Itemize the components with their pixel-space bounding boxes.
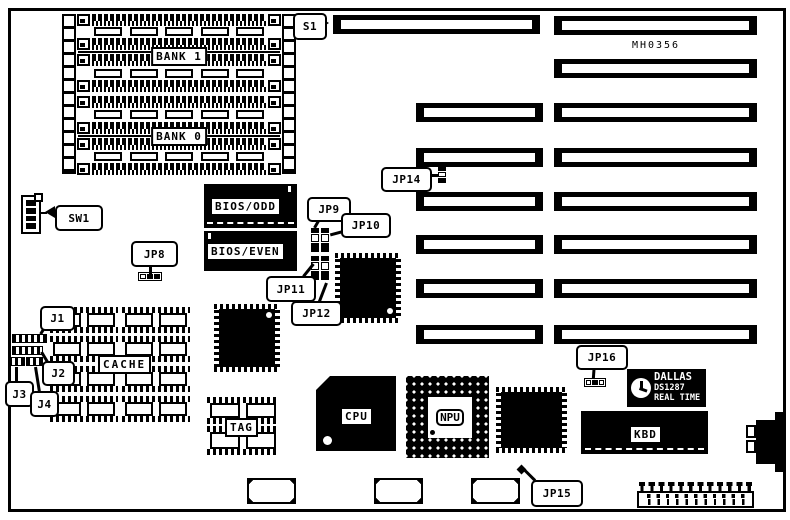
slot-stripe <box>562 153 749 162</box>
slot-stripe <box>562 64 749 73</box>
kbd-label: KBD <box>629 425 662 444</box>
slot-stripe <box>562 21 749 30</box>
j1-header <box>12 334 47 343</box>
simm-socket-row <box>94 27 264 36</box>
simm-socket-cell <box>94 27 122 36</box>
jp10-jumper <box>321 228 329 252</box>
jumper-cell <box>438 178 446 183</box>
expansion-slot <box>554 235 757 254</box>
simm-clip <box>268 14 281 26</box>
bios-even-label: BIOS/EVEN <box>206 242 285 261</box>
io-qfp-chip <box>496 387 567 453</box>
jumper-cell <box>599 380 604 385</box>
power-connector-slots <box>641 494 750 498</box>
simm-socket-cell <box>236 152 264 161</box>
slot-stripe <box>562 197 749 206</box>
rtc-chip: DALLAS DS1287 REAL TIME <box>627 369 706 407</box>
simm-socket-cell <box>201 152 229 161</box>
dip-switch-segment <box>26 223 36 229</box>
simm-rail-left <box>62 14 76 174</box>
socket-cell <box>87 313 115 327</box>
callout-jp14: JP14 <box>381 167 432 192</box>
slot-stripe <box>562 284 749 293</box>
din-pin-tab <box>746 425 756 438</box>
callout-jp16: JP16 <box>576 345 628 370</box>
expansion-slot <box>554 325 757 344</box>
npu-socket: NPU <box>406 376 489 458</box>
simm-clip <box>77 54 90 66</box>
simm-clip <box>268 122 281 134</box>
jumper-cell <box>438 167 446 171</box>
keyboard-din-connector <box>775 412 786 472</box>
simm-clip <box>77 122 90 134</box>
mount-pad <box>374 478 423 504</box>
arrow-left-icon <box>45 206 55 218</box>
socket-pins <box>122 327 190 333</box>
simm-socket-cell <box>94 69 122 78</box>
slot-stripe <box>424 197 535 206</box>
bank0-label: BANK 0 <box>151 127 207 146</box>
controller-qfp-chip <box>214 304 280 372</box>
expansion-slot-s1 <box>333 15 540 34</box>
simm-socket-cell <box>165 27 193 36</box>
jumper-cell <box>321 256 329 261</box>
socket-cell <box>125 372 153 386</box>
slot-stripe <box>424 153 535 162</box>
pin1-dot <box>323 436 332 445</box>
jumper-cell <box>321 243 329 252</box>
npu-label: NPU <box>436 409 464 426</box>
simm-socket-row <box>94 69 264 78</box>
simm-clip <box>77 163 90 175</box>
cache-socket <box>122 396 190 422</box>
jp9-jumper <box>311 228 319 252</box>
simm-clip <box>77 96 90 108</box>
j4-header <box>26 357 43 366</box>
socket-cell <box>53 342 81 356</box>
sw1-corner-pad <box>34 193 43 202</box>
npu-socket-center: NPU <box>428 397 472 438</box>
din-pin-tab <box>746 440 756 453</box>
simm-module <box>92 163 266 175</box>
chip-notch <box>288 186 291 192</box>
socket-cell <box>159 372 187 386</box>
socket-cell <box>125 342 153 356</box>
simm-socket-cell <box>130 152 158 161</box>
simm-socket-cell <box>236 27 264 36</box>
power-connector-cells <box>641 499 750 505</box>
simm-clip <box>77 80 90 92</box>
simm-socket-row <box>94 152 264 161</box>
slot-stripe <box>341 20 532 29</box>
chip-die <box>501 392 562 448</box>
socket-pins <box>50 416 118 422</box>
power-connector <box>637 491 754 508</box>
dip-switch-segment <box>26 216 36 222</box>
cpu-label: CPU <box>340 407 373 426</box>
simm-clip <box>268 138 281 150</box>
jumper-cell <box>311 234 319 242</box>
slot-stripe <box>424 108 535 117</box>
simm-socket-row <box>94 110 264 119</box>
pin1-dot <box>266 312 272 318</box>
simm-socket-cell <box>201 110 229 119</box>
cache-socket <box>50 396 118 422</box>
expansion-slot <box>554 103 757 122</box>
jumper-cell <box>140 274 146 279</box>
slot-stripe <box>424 240 535 249</box>
callout-jp15: JP15 <box>531 480 583 507</box>
jumper-cell <box>321 262 329 270</box>
simm-module <box>92 96 266 108</box>
simm-module <box>92 80 266 92</box>
cache-label: CACHE <box>98 355 151 374</box>
jumper-cell <box>592 380 597 385</box>
chipset-qfp-chip <box>335 253 401 323</box>
slot-stripe <box>562 240 749 249</box>
callout-jp12: JP12 <box>291 301 342 326</box>
simm-module <box>92 14 266 26</box>
motherboard-diagram: BANK 1 BANK 0 MH0356 S1 SW1 JP8 BIOS/ODD… <box>0 0 790 520</box>
chip-notch <box>208 233 211 239</box>
simm-socket-cell <box>236 69 264 78</box>
chip-die <box>219 309 275 367</box>
callout-jp10: JP10 <box>341 213 391 238</box>
expansion-slot <box>554 16 757 35</box>
jp16-jumper <box>584 378 606 387</box>
tag-label: TAG <box>225 418 258 437</box>
slot-stripe <box>562 108 749 117</box>
jumper-cell <box>147 274 153 279</box>
jumper-cell <box>586 380 591 385</box>
simm-socket-cell <box>165 152 193 161</box>
simm-bank-area: BANK 1 BANK 0 <box>62 12 296 176</box>
expansion-slot-8bit <box>416 192 543 211</box>
jumper-cell <box>311 243 319 252</box>
socket-pins <box>207 449 279 455</box>
expansion-slot-8bit <box>416 235 543 254</box>
rtc-model-text: DS1287 <box>654 384 685 393</box>
slot-stripe <box>562 330 749 339</box>
dip-switch-segment <box>26 208 36 214</box>
expansion-slot <box>554 148 757 167</box>
cache-socket <box>122 307 190 333</box>
jumper-cell <box>438 172 446 177</box>
simm-clip <box>268 163 281 175</box>
pin1-dot <box>387 308 393 314</box>
simm-socket-cell <box>165 110 193 119</box>
slot-stripe <box>424 330 535 339</box>
callout-s1: S1 <box>293 13 327 40</box>
simm-socket-cell <box>130 27 158 36</box>
callout-sw1: SW1 <box>55 205 103 231</box>
simm-socket-cell <box>94 110 122 119</box>
simm-socket-cell <box>94 152 122 161</box>
socket-cell <box>87 402 115 416</box>
socket-pins <box>122 386 190 392</box>
mount-pad <box>471 478 520 504</box>
socket-cell <box>246 403 276 418</box>
bios-odd-label: BIOS/ODD <box>210 197 281 216</box>
jp12-jumper <box>321 256 329 280</box>
callout-j1: J1 <box>40 306 75 331</box>
leader-line <box>15 367 18 382</box>
expansion-slot-8bit <box>416 103 543 122</box>
simm-clip <box>77 138 90 150</box>
expansion-slot-8bit <box>416 148 543 167</box>
pin1-dot <box>430 430 435 435</box>
simm-clip <box>268 54 281 66</box>
jp14-jumper <box>438 167 446 183</box>
socket-pins <box>50 386 118 392</box>
socket-cell <box>159 342 187 356</box>
socket-cell <box>159 402 187 416</box>
simm-socket-cell <box>165 69 193 78</box>
board-id-text: MH0356 <box>621 40 691 51</box>
socket-cell <box>87 342 115 356</box>
simm-socket-cell <box>201 27 229 36</box>
expansion-slot <box>554 279 757 298</box>
jumper-cell <box>154 274 160 279</box>
simm-clip <box>268 80 281 92</box>
callout-j2: J2 <box>42 361 75 386</box>
expansion-slot-8bit <box>416 325 543 344</box>
simm-socket-cell <box>236 110 264 119</box>
socket-cell <box>159 313 187 327</box>
bank1-label: BANK 1 <box>151 47 207 66</box>
socket-cell <box>125 402 153 416</box>
jumper-cell <box>321 234 329 242</box>
j2-header <box>12 346 43 355</box>
simm-clip <box>77 38 90 50</box>
simm-socket-cell <box>201 69 229 78</box>
expansion-slot <box>554 192 757 211</box>
callout-jp11: JP11 <box>266 276 316 302</box>
jumper-cell <box>311 228 319 233</box>
socket-pins <box>122 416 190 422</box>
j3-header <box>8 357 25 366</box>
simm-socket-cell <box>130 110 158 119</box>
callout-j4: J4 <box>30 391 59 417</box>
simm-clip <box>268 96 281 108</box>
rtc-type-text: REAL TIME <box>654 394 700 403</box>
simm-clip <box>77 14 90 26</box>
socket-cell <box>87 372 115 386</box>
socket-cell <box>210 403 240 418</box>
simm-clip <box>268 38 281 50</box>
mount-pad <box>247 478 296 504</box>
simm-socket-cell <box>130 69 158 78</box>
expansion-slot <box>554 59 757 78</box>
socket-cell <box>125 313 153 327</box>
expansion-slot-8bit <box>416 279 543 298</box>
jumper-cell <box>311 256 319 261</box>
rtc-brand-text: DALLAS <box>654 372 692 383</box>
slot-stripe <box>424 284 535 293</box>
chip-dashed-line <box>585 448 704 450</box>
jumper-cell <box>321 271 329 280</box>
clock-icon <box>631 378 651 398</box>
power-connector-pins <box>639 482 752 491</box>
jumper-cell <box>321 228 329 233</box>
callout-jp8: JP8 <box>131 241 178 267</box>
chip-dashed-line <box>207 222 294 224</box>
